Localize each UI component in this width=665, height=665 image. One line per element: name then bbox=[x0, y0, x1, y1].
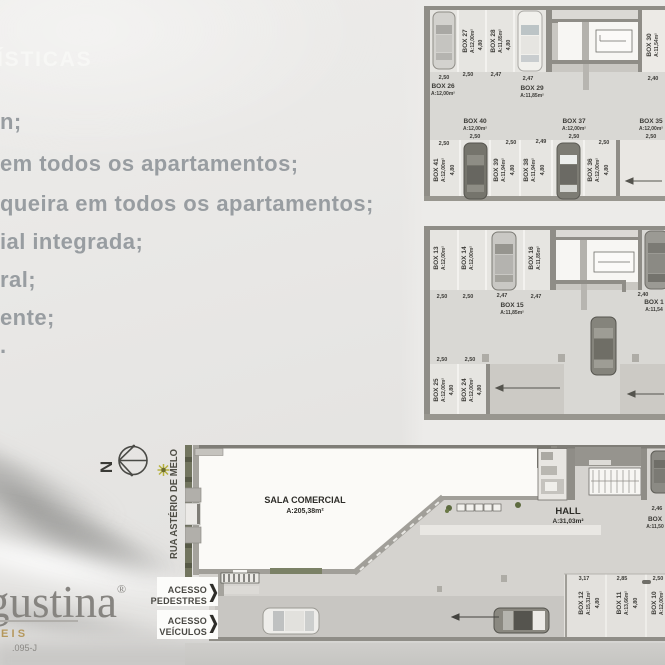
svg-text:4,80: 4,80 bbox=[633, 598, 639, 609]
svg-text:BOX 25: BOX 25 bbox=[433, 378, 440, 402]
svg-text:HALL: HALL bbox=[555, 506, 581, 517]
svg-text:A:12,00m²: A:12,00m² bbox=[562, 126, 586, 132]
svg-text:SALA COMERCIAL: SALA COMERCIAL bbox=[264, 495, 346, 505]
svg-text:A:11,54m²: A:11,54m² bbox=[654, 33, 660, 57]
svg-text:A:11,85m²: A:11,85m² bbox=[520, 93, 544, 99]
svg-text:A:12,00m²: A:12,00m² bbox=[441, 246, 447, 270]
svg-text:A:15,31m²: A:15,31m² bbox=[586, 591, 592, 615]
svg-text:BOX 14: BOX 14 bbox=[461, 246, 468, 270]
svg-text:BOX: BOX bbox=[648, 516, 663, 523]
svg-text:A:12,00m²: A:12,00m² bbox=[431, 91, 455, 97]
svg-text:4,80: 4,80 bbox=[477, 385, 483, 396]
svg-text:A:12,00m²: A:12,00m² bbox=[469, 246, 475, 270]
svg-text:RUA ASTÉRIO DE MELO: RUA ASTÉRIO DE MELO bbox=[167, 449, 180, 559]
svg-text:2,50: 2,50 bbox=[599, 140, 610, 146]
svg-text:BOX 36: BOX 36 bbox=[587, 158, 594, 182]
svg-text:BOX 11: BOX 11 bbox=[616, 591, 623, 614]
svg-text:A:13,66m²: A:13,66m² bbox=[624, 591, 630, 615]
svg-text:A:12,00m²: A:12,00m² bbox=[469, 378, 475, 402]
svg-text:2,50: 2,50 bbox=[439, 141, 450, 147]
svg-text:A:12,00m²: A:12,00m² bbox=[470, 29, 476, 53]
svg-text:BOX 26: BOX 26 bbox=[431, 83, 455, 90]
svg-text:4,80: 4,80 bbox=[449, 385, 455, 396]
svg-text:BOX 24: BOX 24 bbox=[461, 378, 468, 402]
svg-text:2,50: 2,50 bbox=[653, 576, 664, 582]
svg-text:2,50: 2,50 bbox=[463, 72, 474, 78]
svg-text:BOX 13: BOX 13 bbox=[433, 246, 440, 270]
svg-text:BOX 29: BOX 29 bbox=[520, 85, 544, 92]
svg-text:2,50: 2,50 bbox=[569, 134, 580, 140]
svg-text:BOX 35: BOX 35 bbox=[639, 118, 663, 125]
svg-text:A:12,00m²: A:12,00m² bbox=[595, 158, 601, 182]
svg-text:BOX 39: BOX 39 bbox=[493, 158, 500, 182]
svg-text:BOX 12: BOX 12 bbox=[578, 591, 585, 615]
svg-text:2,50: 2,50 bbox=[439, 75, 450, 81]
svg-text:2,50: 2,50 bbox=[506, 140, 517, 146]
svg-text:BOX 37: BOX 37 bbox=[562, 118, 586, 125]
svg-text:2,49: 2,49 bbox=[536, 139, 547, 145]
svg-text:A:12,00m²: A:12,00m² bbox=[463, 126, 487, 132]
svg-text:A:11,94m²: A:11,94m² bbox=[531, 158, 537, 182]
svg-text:4,80: 4,80 bbox=[450, 165, 456, 176]
svg-text:4,80: 4,80 bbox=[506, 40, 512, 51]
svg-text:2,50: 2,50 bbox=[470, 134, 481, 140]
svg-text:A:205,38m²: A:205,38m² bbox=[286, 508, 324, 515]
svg-text:BOX 41: BOX 41 bbox=[433, 158, 440, 182]
svg-text:A:31,03m²: A:31,03m² bbox=[552, 518, 584, 525]
svg-text:A:11,85m²: A:11,85m² bbox=[536, 246, 542, 270]
svg-text:4,80: 4,80 bbox=[478, 40, 484, 51]
svg-text:A:11,94m²: A:11,94m² bbox=[501, 158, 507, 182]
svg-text:A:11,54: A:11,54 bbox=[645, 307, 663, 313]
svg-text:A:12,00m²: A:12,00m² bbox=[441, 158, 447, 182]
svg-text:BOX 10: BOX 10 bbox=[651, 591, 658, 615]
svg-text:2,50: 2,50 bbox=[646, 134, 657, 140]
svg-text:A:11,85m²: A:11,85m² bbox=[500, 310, 524, 316]
svg-text:A:12,00m²: A:12,00m² bbox=[639, 126, 663, 132]
svg-text:N: N bbox=[97, 461, 116, 473]
svg-text:2,47: 2,47 bbox=[491, 72, 502, 78]
svg-text:2,50: 2,50 bbox=[437, 294, 448, 300]
svg-text:BOX 1: BOX 1 bbox=[644, 299, 664, 306]
svg-text:BOX 30: BOX 30 bbox=[646, 33, 653, 57]
svg-text:2,46: 2,46 bbox=[652, 506, 663, 512]
svg-text:2,40: 2,40 bbox=[638, 292, 649, 298]
svg-text:4,80: 4,80 bbox=[604, 165, 610, 176]
svg-text:A:11,50: A:11,50 bbox=[646, 524, 664, 530]
svg-text:2,85: 2,85 bbox=[617, 576, 628, 582]
svg-text:BOX 40: BOX 40 bbox=[463, 118, 487, 125]
svg-text:BOX 15: BOX 15 bbox=[500, 302, 524, 309]
svg-text:2,50: 2,50 bbox=[437, 357, 448, 363]
svg-text:BOX 38: BOX 38 bbox=[523, 158, 530, 182]
svg-text:4,80: 4,80 bbox=[595, 598, 601, 609]
svg-text:2,50: 2,50 bbox=[463, 294, 474, 300]
svg-text:A:12,00m²: A:12,00m² bbox=[441, 378, 447, 402]
svg-text:BOX 27: BOX 27 bbox=[462, 29, 469, 53]
svg-text:2,50: 2,50 bbox=[465, 357, 476, 363]
svg-text:A:12,00m²: A:12,00m² bbox=[659, 591, 665, 615]
svg-text:4,80: 4,80 bbox=[510, 165, 516, 176]
svg-text:BOX 28: BOX 28 bbox=[490, 29, 497, 53]
svg-text:BOX 16: BOX 16 bbox=[528, 246, 535, 270]
svg-text:2,47: 2,47 bbox=[523, 76, 534, 82]
svg-text:2,47: 2,47 bbox=[531, 294, 542, 300]
svg-text:4,80: 4,80 bbox=[540, 165, 546, 176]
svg-text:A:11,85m²: A:11,85m² bbox=[498, 29, 504, 53]
svg-text:3,17: 3,17 bbox=[579, 576, 590, 582]
svg-text:2,47: 2,47 bbox=[497, 293, 508, 299]
svg-text:2,40: 2,40 bbox=[648, 76, 659, 82]
